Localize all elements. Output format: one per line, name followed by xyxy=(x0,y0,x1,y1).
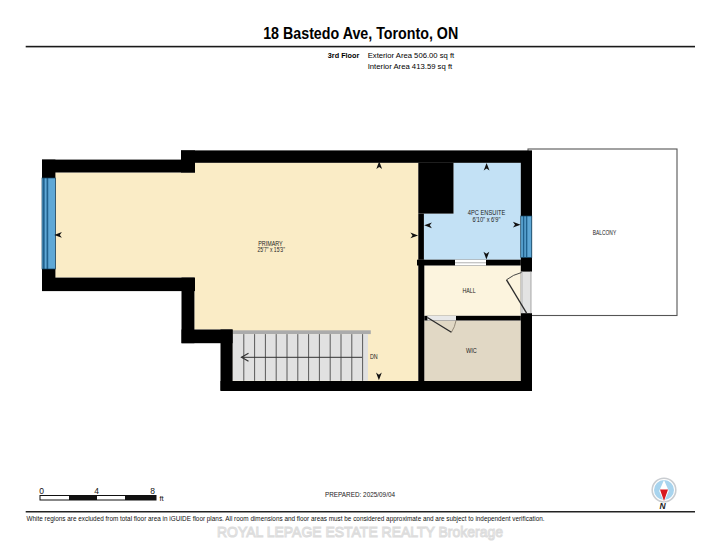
svg-text:N: N xyxy=(659,501,666,511)
svg-text:25'7" x 15'3": 25'7" x 15'3" xyxy=(257,246,285,253)
svg-text:PREPARED: 2025/09/04: PREPARED: 2025/09/04 xyxy=(325,490,395,499)
svg-text:DN: DN xyxy=(370,353,378,360)
svg-text:6'10" x 6'9": 6'10" x 6'9" xyxy=(473,216,501,223)
svg-text:WIC: WIC xyxy=(466,347,477,354)
svg-text:8: 8 xyxy=(150,486,155,496)
svg-text:HALL: HALL xyxy=(463,287,476,294)
svg-text:3rd Floor: 3rd Floor xyxy=(328,51,360,60)
svg-text:Interior Area 413.59 sq ft: Interior Area 413.59 sq ft xyxy=(368,62,453,71)
svg-text:Exterior Area 506.00 sq ft: Exterior Area 506.00 sq ft xyxy=(368,51,455,60)
svg-text:ROYAL LEPAGE ESTATE REALTY Br: ROYAL LEPAGE ESTATE REALTY Brokerage xyxy=(217,523,503,540)
svg-text:0: 0 xyxy=(39,486,44,496)
svg-text:4: 4 xyxy=(94,486,99,496)
svg-text:18 Bastedo Ave, Toronto, ON: 18 Bastedo Ave, Toronto, ON xyxy=(263,25,458,42)
svg-text:BALCONY: BALCONY xyxy=(593,229,617,236)
